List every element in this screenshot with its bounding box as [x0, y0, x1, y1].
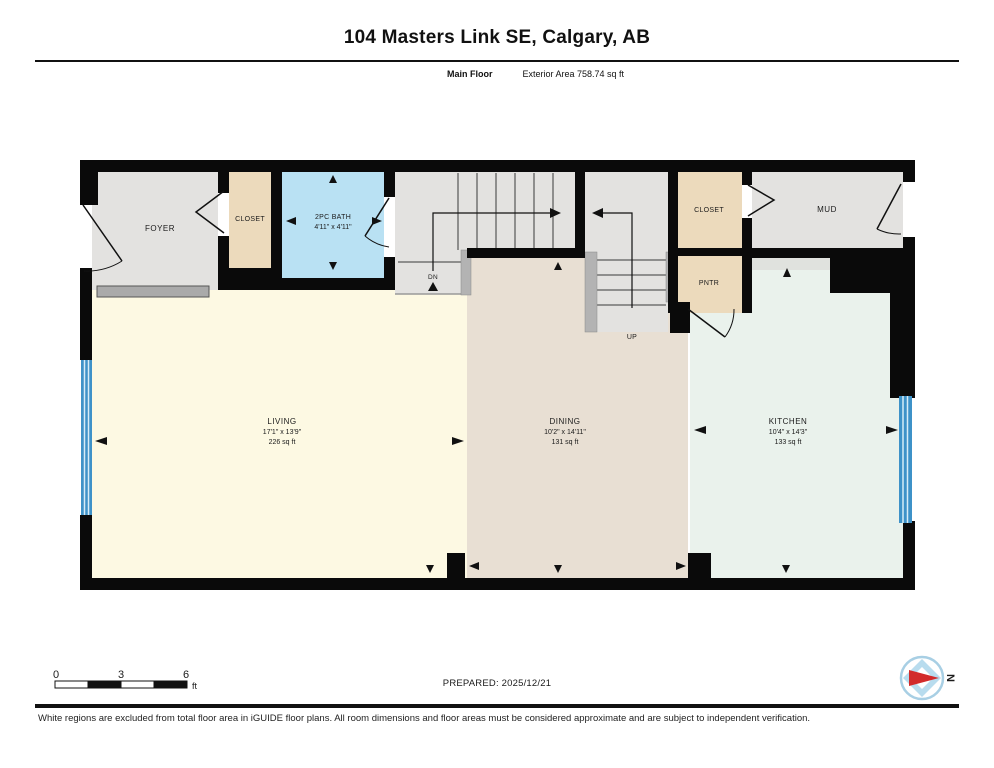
stairs-up-label: UP	[627, 334, 637, 341]
prepared-date: PREPARED: 2025/12/21	[443, 678, 551, 689]
closet-right-fill	[678, 172, 742, 256]
living-dims: 17'1" x 13'9"	[263, 429, 302, 436]
page-title: 104 Masters Link SE, Calgary, AB	[0, 27, 994, 49]
living-label: LIVING	[267, 417, 296, 426]
floor-plan: FOYER CLOSET 2PC BATH 4'11" x 4'11" DN U…	[0, 0, 994, 768]
compass-north-label: N	[944, 674, 956, 682]
scale-unit-label: ft	[192, 681, 198, 691]
floor-plan-page: FOYER CLOSET 2PC BATH 4'11" x 4'11" DN U…	[0, 0, 994, 768]
living-area: 226 sq ft	[269, 439, 296, 446]
scale-tick-3: 3	[118, 669, 124, 681]
scale-tick-0: 0	[53, 669, 59, 681]
kitchen-dims: 10'4" x 14'3"	[769, 429, 808, 436]
bath-dims: 4'11" x 4'11"	[314, 224, 352, 231]
scale-bar: 0 3 6 ft	[53, 669, 198, 691]
dining-dims: 10'2" x 14'11"	[544, 429, 586, 436]
exterior-area-label: Exterior Area 758.74 sq ft	[523, 69, 625, 79]
floor-name-label: Main Floor	[447, 69, 493, 79]
kitchen-area: 133 sq ft	[775, 439, 802, 446]
closet-right-label: CLOSET	[694, 207, 724, 214]
stairs-down-label: DN	[428, 274, 438, 281]
room-fills	[92, 172, 903, 578]
mud-label: MUD	[817, 205, 837, 214]
foyer-label: FOYER	[145, 224, 175, 233]
footer-divider	[35, 704, 959, 708]
floor-subtitle: Main Floor Exterior Area 758.74 sq ft	[447, 69, 624, 79]
compass-icon: N	[901, 657, 956, 699]
scale-tick-6: 6	[183, 669, 189, 681]
bath-label: 2PC BATH	[315, 214, 351, 221]
kitchen-label: KITCHEN	[769, 417, 808, 426]
dining-label: DINING	[550, 417, 581, 426]
window-left	[81, 360, 92, 515]
stairs-up-fill	[585, 172, 668, 332]
header-divider	[35, 60, 959, 62]
disclaimer-text: White regions are excluded from total fl…	[38, 713, 934, 724]
dining-area: 131 sq ft	[552, 439, 579, 446]
stairs-down-fill	[395, 172, 575, 252]
closet-left-label: CLOSET	[235, 216, 265, 223]
window-right	[899, 396, 912, 523]
pantry-label: PNTR	[699, 280, 719, 287]
foyer-bench	[97, 286, 209, 297]
mud-entry-strip	[752, 258, 832, 270]
